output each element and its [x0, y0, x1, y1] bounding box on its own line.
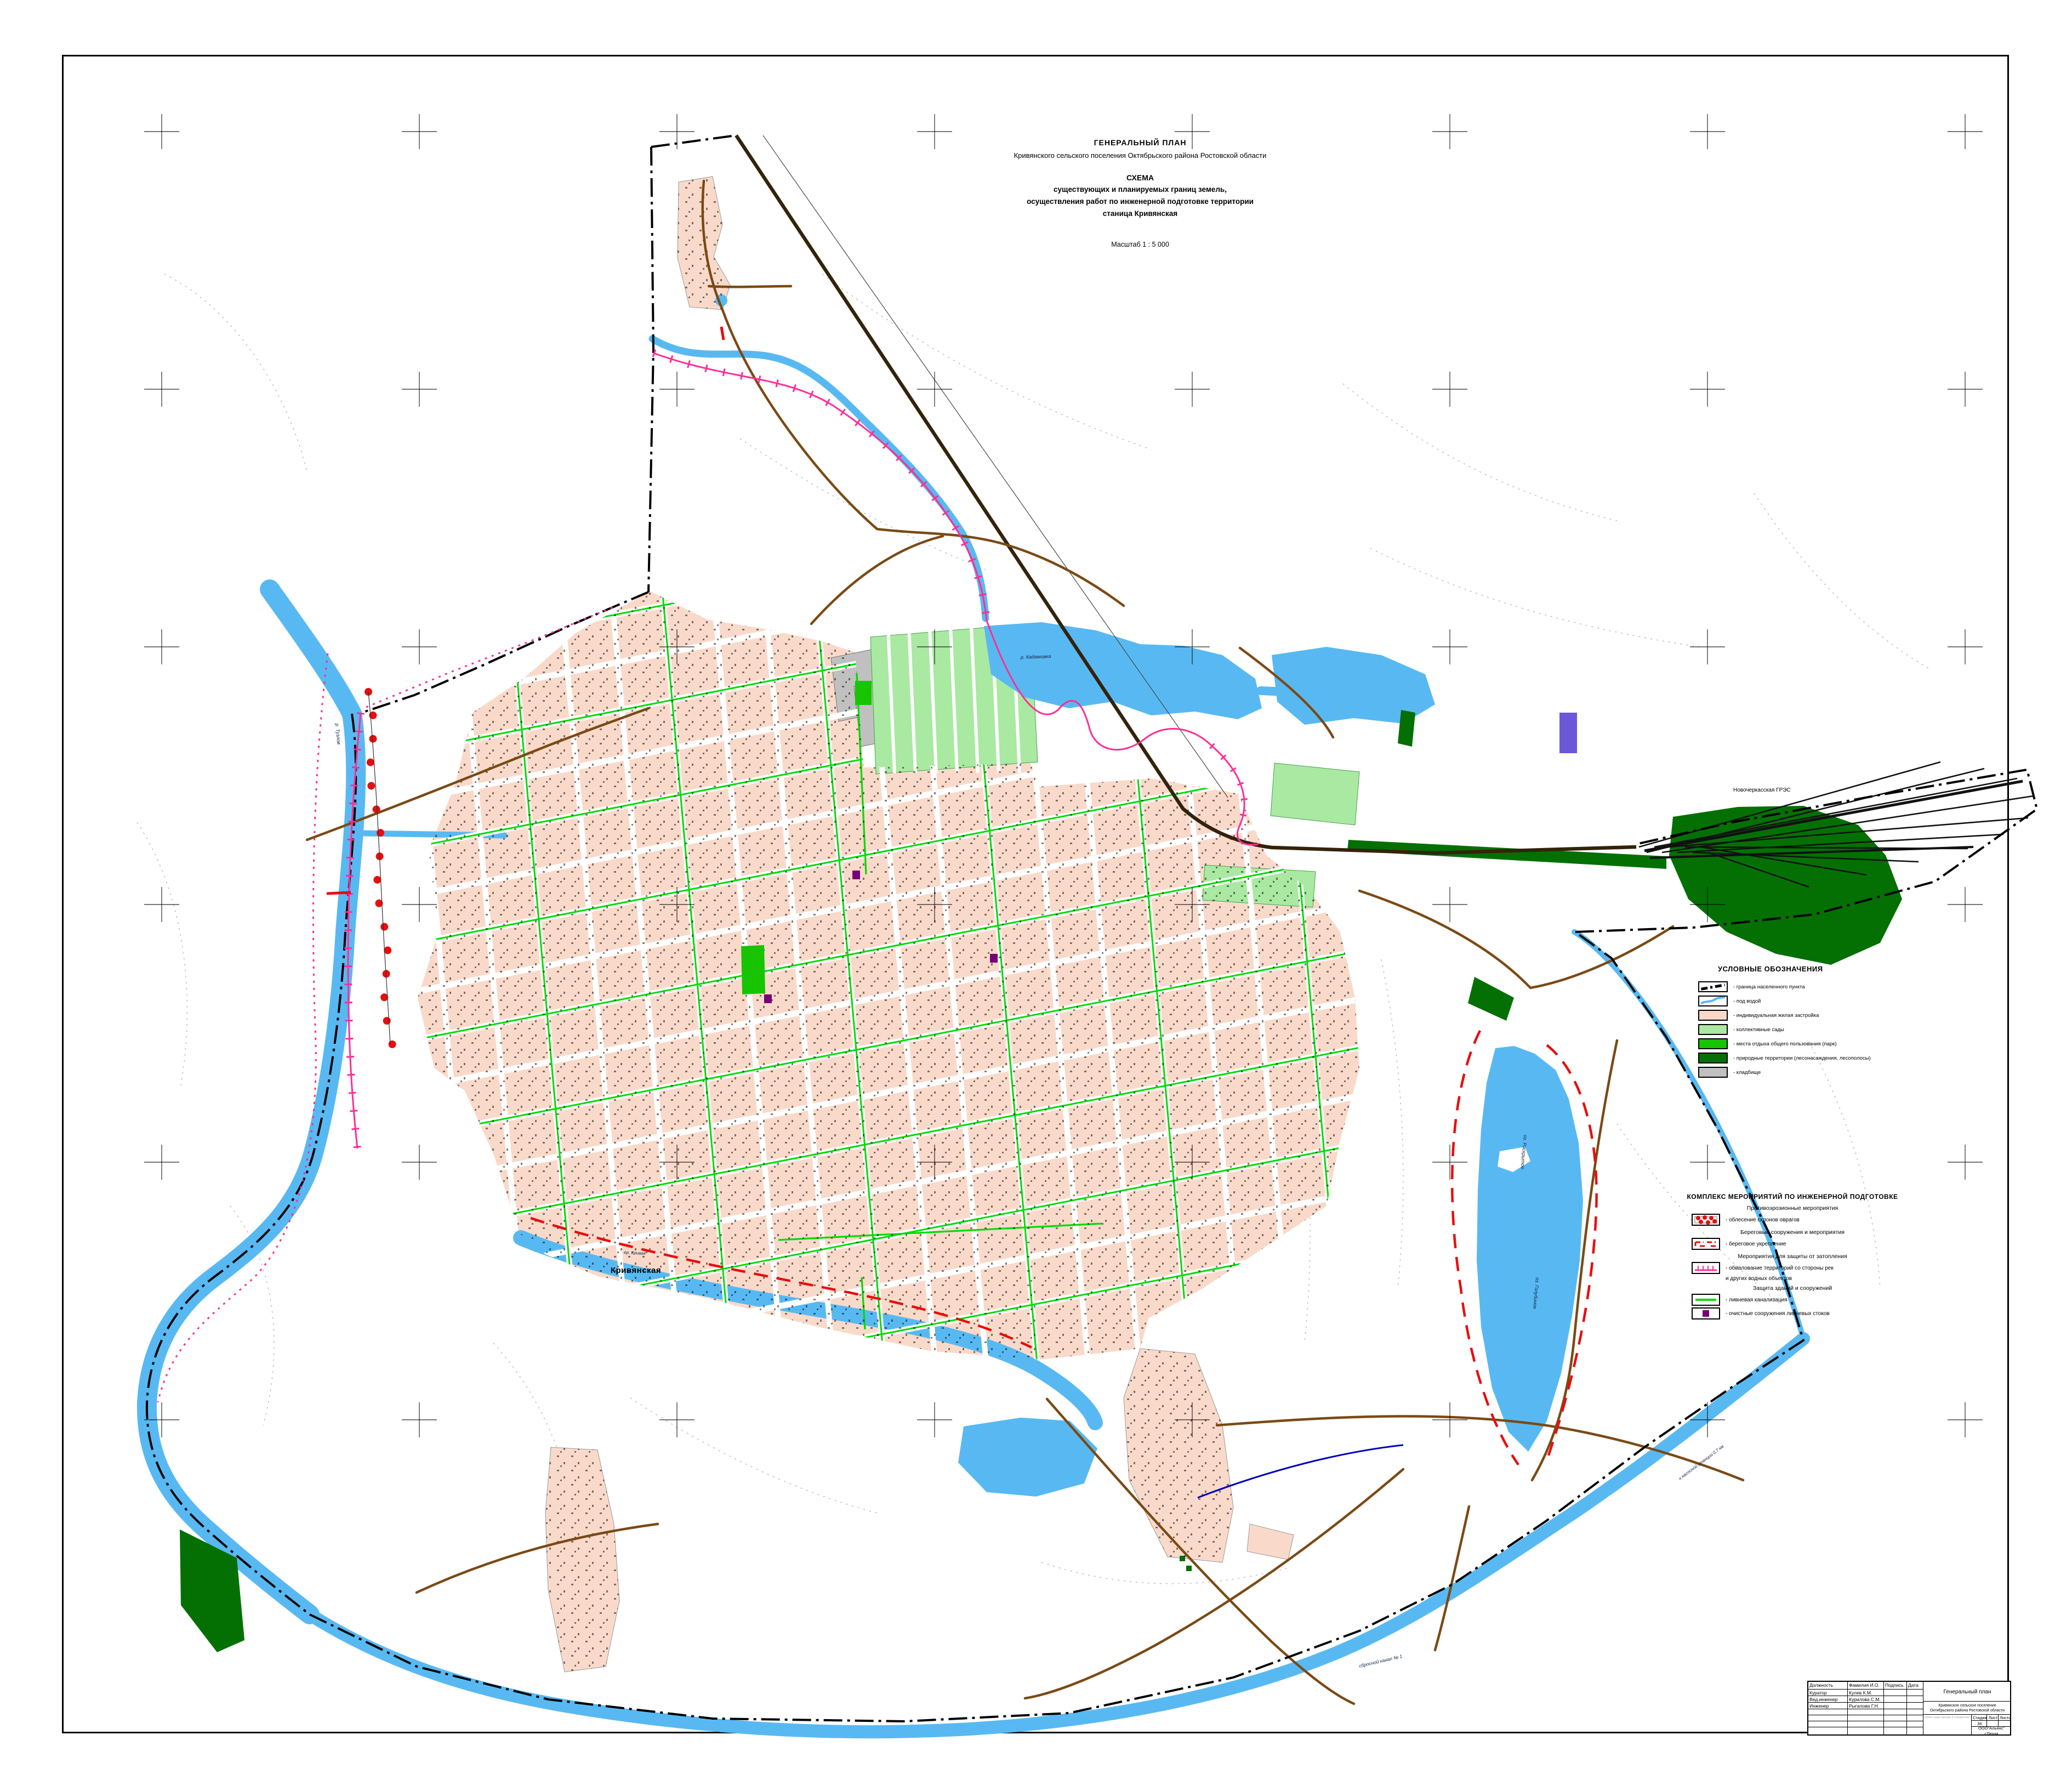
- stamp-name-0: Кулев К.М.: [1848, 1690, 1884, 1696]
- scheme-line3: станица Кривянская: [811, 209, 1469, 219]
- gully-line: [368, 692, 390, 1044]
- heading-shore: Береговые сооружения и мероприятия: [1666, 1229, 1919, 1236]
- stamp-empty: [1808, 1727, 1848, 1734]
- stamp-col-name: Фамилия И.О.: [1848, 1682, 1884, 1690]
- legend-row-forest: - природные территории (лесонасаждения, …: [1698, 1051, 1928, 1065]
- heading-buildings: Защита зданий и сооружений: [1666, 1285, 1919, 1292]
- company-city: г.Пенза: [1973, 1731, 2010, 1735]
- afforestation-symbol: [1692, 1214, 1720, 1226]
- legend-label: - природные территории (лесонасаждения, …: [1733, 1055, 1871, 1061]
- legend-measures-title: КОМПЛЕКС МЕРОПРИЯТИЙ ПО ИНЖЕНЕРНОЙ ПОДГО…: [1666, 1193, 1919, 1201]
- stamp-empty: [1808, 1721, 1848, 1727]
- legend-row-boundary: - граница населенного пункта: [1698, 980, 1928, 994]
- gardens-swatch: [1698, 1024, 1728, 1035]
- stamp-sign-0: [1884, 1690, 1907, 1696]
- south-pond: [958, 1418, 1097, 1497]
- stamp-empty: [1907, 1721, 1923, 1727]
- legend-row-gardens: - коллективные сады: [1698, 1022, 1928, 1037]
- legend-label: - очистные сооружения ливневых стоков: [1726, 1311, 1830, 1317]
- magenta-ticks-icon: [1693, 1263, 1719, 1273]
- stamp-empty: [1907, 1727, 1923, 1734]
- stamp-subtitle-1: Кривянское сельское поселение: [1925, 1703, 2010, 1708]
- stamp-role-2: Инженер: [1808, 1703, 1848, 1709]
- stamp-empty: [1884, 1727, 1907, 1734]
- row-embankment-line2: и других водных объектов: [1726, 1276, 1919, 1282]
- stamp-doc-title: Генеральный план: [1923, 1682, 2010, 1702]
- stamp-empty: [1848, 1721, 1884, 1727]
- legend-label: - граница населенного пункта: [1733, 984, 1805, 990]
- stage-label: Стадия: [1972, 1715, 1987, 1721]
- park-swatch: [1698, 1038, 1728, 1049]
- legend-row-housing: - индивидуальная жилая застройка: [1698, 1008, 1928, 1022]
- stamp-col-role: Должность: [1808, 1682, 1848, 1690]
- stamp-empty: [1907, 1709, 1923, 1715]
- stamp-empty: [1848, 1709, 1884, 1715]
- legend-label: - кладбище: [1733, 1070, 1761, 1076]
- stamp-empty: [1848, 1727, 1884, 1734]
- green-line-icon: [1693, 1295, 1719, 1305]
- stamp-empty: [1884, 1715, 1907, 1721]
- general-plan-map: Кривянская Новочеркасская ГРЭС р. Тузлов…: [0, 0, 2072, 1786]
- housing-swatch: [1698, 1010, 1728, 1021]
- stamp-role-0: Куратор: [1808, 1690, 1848, 1696]
- stamp-empty: [1884, 1721, 1907, 1727]
- row-treatment: - очистные сооружения ливневых стоков: [1692, 1307, 1919, 1319]
- sheets-label: Листов: [1999, 1715, 2010, 1721]
- stamp-date-2: [1907, 1703, 1923, 1709]
- pump-station-label: к насосной станции 0,7 км: [1678, 1444, 1725, 1481]
- canal-label: сбросной канал № 1: [1358, 1653, 1403, 1669]
- stamp-sign-2: [1884, 1703, 1907, 1709]
- stamp-empty: [1884, 1709, 1907, 1715]
- water-line-icon: [1700, 996, 1726, 1006]
- legend-row-cemetery: - кладбище: [1698, 1065, 1928, 1079]
- river-tuzlov-label: р. Тузлов: [334, 723, 341, 744]
- row-storm-sewer: - ливневая канализация: [1692, 1294, 1919, 1306]
- heading-erosion: Противоэрозионные мероприятия: [1666, 1205, 1919, 1211]
- map-scale: Масштаб 1 : 5 000: [811, 241, 1469, 249]
- legend-label: - береговое укрепление: [1726, 1241, 1786, 1247]
- red-dashed-icon: [1693, 1239, 1719, 1249]
- treatment-symbol: [1692, 1307, 1720, 1319]
- stamp-scheme-note: СХЕМА существующих и планируемых границ …: [1923, 1715, 1972, 1734]
- plan-subtitle: Кривянского сельского поселения Октябрьс…: [811, 151, 1469, 160]
- sheet-label: Лист: [1987, 1715, 1999, 1721]
- stamp-role-1: Вед.инженер: [1808, 1696, 1848, 1703]
- sheet-title-block: ГЕНЕРАЛЬНЫЙ ПЛАН Кривянского сельского п…: [811, 138, 1469, 249]
- drawing-page: Кривянская Новочеркасская ГРЭС р. Тузлов…: [0, 0, 2072, 1786]
- stamp-col-date: Дата: [1907, 1682, 1923, 1690]
- violet-patch: [1559, 713, 1577, 753]
- stamp-empty: [1808, 1709, 1848, 1715]
- stage-value: ЗК: [1972, 1721, 1987, 1727]
- embankment-symbol: [1692, 1262, 1720, 1274]
- stamp-empty: [1907, 1715, 1923, 1721]
- scheme-title: СХЕМА: [811, 173, 1469, 183]
- stamp-sign-1: [1884, 1696, 1907, 1703]
- legend-label: - облесение склонов оврагов: [1726, 1217, 1800, 1223]
- stamp-name-2: Рыгалова Г.Н.: [1848, 1703, 1884, 1709]
- power-station-label: Новочеркасская ГРЭС: [1733, 787, 1791, 793]
- boundary-swatch: [1698, 981, 1728, 992]
- legend-row-park: - места отдыха общего пользования (парк): [1698, 1037, 1928, 1051]
- south-canal-path: [310, 1339, 1803, 1732]
- legend-label: - ливневая канализация: [1726, 1297, 1787, 1303]
- legend-label: - места отдыха общего пользования (парк): [1733, 1041, 1836, 1047]
- legend-symbols-title: УСЛОВНЫЕ ОБОЗНАЧЕНИЯ: [1718, 965, 1928, 973]
- legend-label: - коллективные сады: [1733, 1027, 1784, 1033]
- row-embankment: - обвалование территорий со стороны рек: [1692, 1262, 1919, 1274]
- town-label: Кривянская: [611, 1266, 661, 1275]
- stamp-empty: [1808, 1715, 1848, 1721]
- cemetery-swatch: [1698, 1067, 1728, 1078]
- small-settlement-cluster: [1247, 1524, 1294, 1560]
- legend-label: - обвалование территорий со стороны рек: [1726, 1265, 1834, 1271]
- stamp-empty: [1848, 1715, 1884, 1721]
- stamp-col-sign: Подпись: [1884, 1682, 1907, 1690]
- red-dots-icon: [1693, 1215, 1719, 1225]
- stamp-name-1: Курилова С.М.: [1848, 1696, 1884, 1703]
- row-afforestation: - облесение склонов оврагов: [1692, 1214, 1919, 1226]
- legend-symbols: УСЛОВНЫЕ ОБОЗНАЧЕНИЯ - граница населенно…: [1698, 965, 1928, 1079]
- company-name: ООО"Альянс": [1973, 1727, 2010, 1731]
- sheets-value: [1999, 1721, 2010, 1727]
- storm-sewer-symbol: [1692, 1294, 1720, 1306]
- stamp-date-1: [1907, 1696, 1923, 1703]
- company-cell: ООО"Альянс" г.Пенза: [1972, 1727, 2010, 1734]
- stamp-subtitle-2: Октябрьского района Ростовской области: [1925, 1708, 2010, 1713]
- plan-title: ГЕНЕРАЛЬНЫЙ ПЛАН: [811, 138, 1469, 148]
- purple-square-icon: [1693, 1309, 1719, 1318]
- stamp-date-0: [1907, 1690, 1923, 1696]
- water-swatch: [1698, 996, 1728, 1006]
- forest-swatch: [1698, 1053, 1728, 1063]
- bank-protection-symbol: [1692, 1238, 1720, 1250]
- stamp-doc-subtitle: Кривянское сельское поселение Октябрьско…: [1923, 1702, 2010, 1715]
- scheme-line1: существующих и планируемых границ земель…: [811, 185, 1469, 195]
- title-stamp: Должность Фамилия И.О. Подпись Дата Кура…: [1807, 1681, 2011, 1736]
- row-bank-protection: - береговое укрепление: [1692, 1238, 1919, 1250]
- legend-label: - под водой: [1733, 998, 1761, 1004]
- scheme-line2: осуществления работ по инженерной подгот…: [811, 197, 1469, 207]
- river-kadamovka-label: р. Кадамовка: [1020, 653, 1051, 660]
- legend-measures: КОМПЛЕКС МЕРОПРИЯТИЙ ПО ИНЖЕНЕРНОЙ ПОДГО…: [1666, 1193, 1919, 1321]
- legend-label: - индивидуальная жилая застройка: [1733, 1013, 1819, 1019]
- sheet-value: [1987, 1721, 1999, 1727]
- legend-row-underwater: - под водой: [1698, 994, 1928, 1008]
- heading-flood: Мероприятия для защиты от затопления: [1666, 1253, 1919, 1260]
